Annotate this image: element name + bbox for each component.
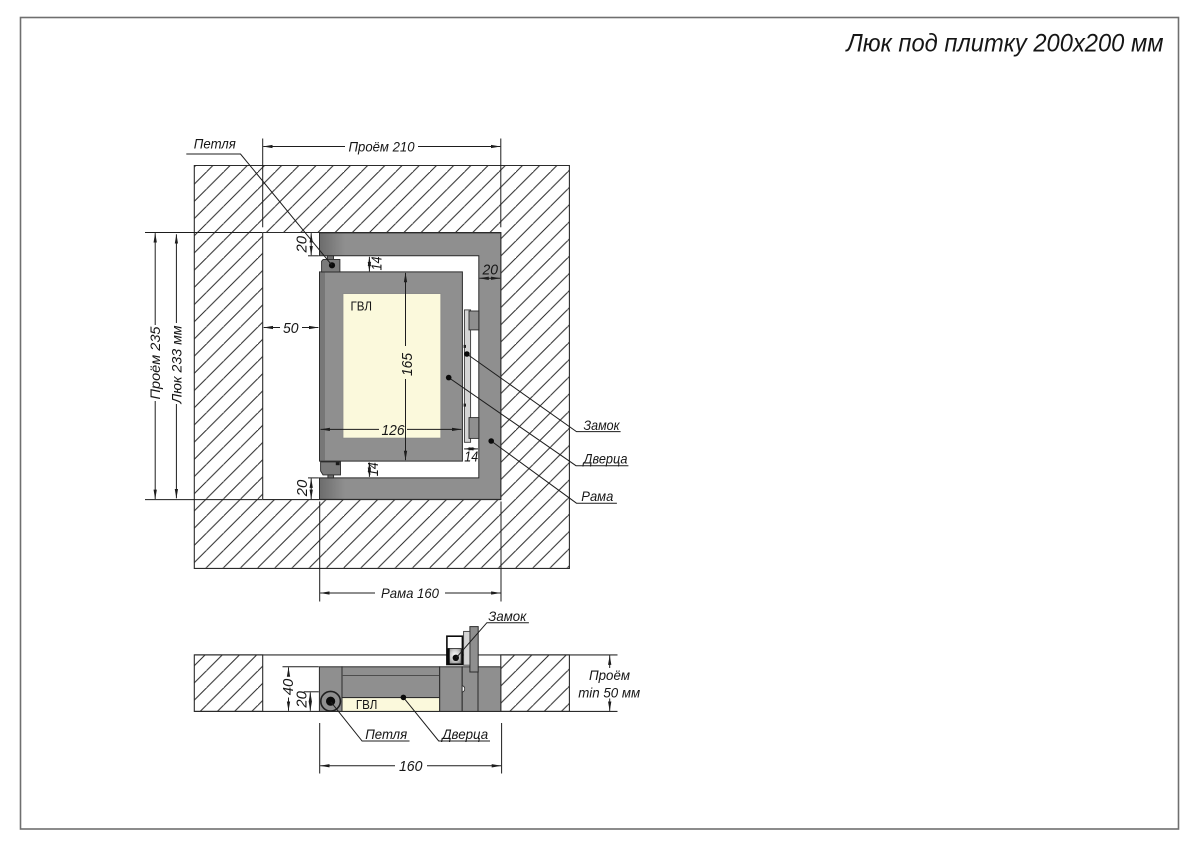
svg-text:Проём 210: Проём 210 [349, 139, 415, 154]
svg-text:Люк под плитку 200х200 мм: Люк под плитку 200х200 мм [845, 30, 1164, 58]
svg-text:Петля: Петля [194, 137, 236, 152]
svg-text:Проём: Проём [589, 668, 631, 683]
svg-text:20: 20 [294, 691, 311, 709]
svg-text:14: 14 [365, 462, 382, 476]
svg-text:min 50 мм: min 50 мм [578, 685, 641, 700]
svg-text:Рама 160: Рама 160 [381, 586, 439, 601]
svg-text:14: 14 [369, 257, 386, 271]
svg-text:ГВЛ: ГВЛ [356, 698, 378, 712]
svg-text:14: 14 [464, 449, 478, 466]
svg-text:ГВЛ: ГВЛ [351, 299, 373, 313]
svg-text:20: 20 [294, 479, 311, 497]
svg-text:Петля: Петля [365, 727, 407, 742]
svg-text:Замок: Замок [584, 418, 621, 433]
svg-text:126: 126 [382, 422, 406, 439]
svg-text:Дверца: Дверца [582, 451, 628, 466]
svg-text:Рама: Рама [581, 489, 613, 504]
svg-text:20: 20 [482, 261, 499, 278]
svg-text:50: 50 [283, 320, 299, 337]
svg-text:20: 20 [294, 235, 311, 253]
svg-text:Замок: Замок [488, 609, 527, 624]
svg-text:160: 160 [399, 758, 423, 775]
svg-text:Дверца: Дверца [440, 727, 488, 742]
svg-text:Проём 235: Проём 235 [148, 326, 163, 399]
svg-text:Люк 233 мм: Люк 233 мм [169, 325, 184, 405]
svg-text:165: 165 [399, 352, 416, 376]
